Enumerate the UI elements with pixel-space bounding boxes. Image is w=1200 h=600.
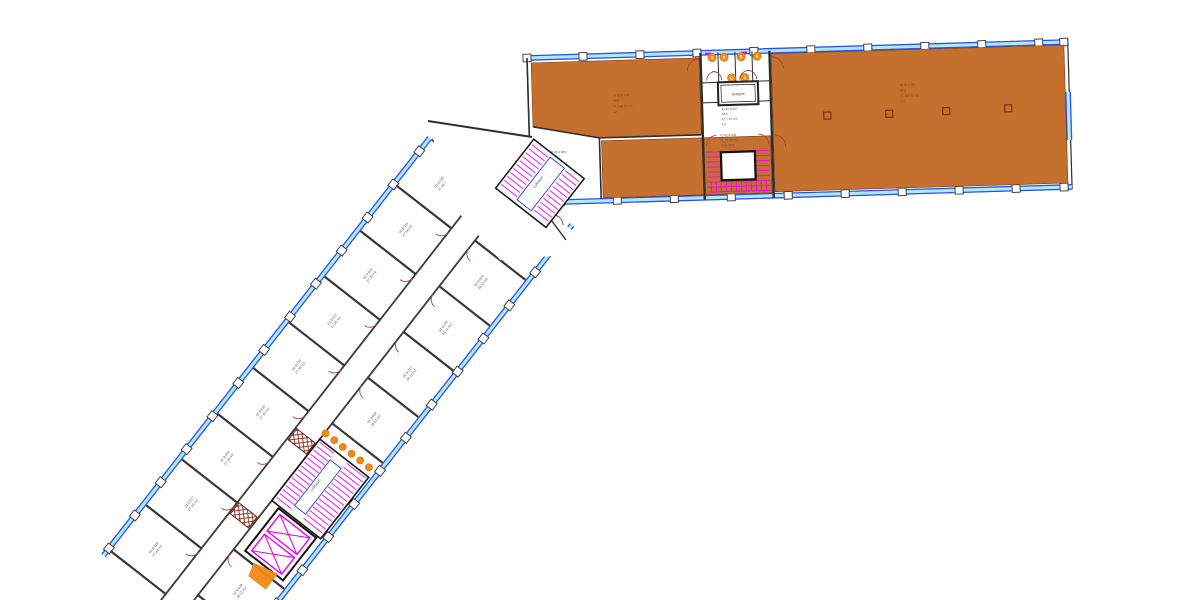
svg-text:FL 138.63 m2: FL 138.63 m2 — [613, 104, 632, 109]
svg-text:LH: LH — [900, 99, 904, 103]
svg-text:FL 7.87 m2: FL 7.87 m2 — [722, 117, 738, 121]
svg-text:NF5: NF5 — [900, 88, 906, 92]
svg-text:ID 02.9.002: ID 02.9.002 — [613, 93, 629, 97]
svg-text:ID 02.9.046: ID 02.9.046 — [720, 133, 736, 137]
svg-text:FL 489.52 m2: FL 489.52 m2 — [900, 93, 919, 98]
svg-text:NF5: NF5 — [613, 99, 619, 103]
svg-text:ID 02.9.047: ID 02.9.047 — [722, 107, 738, 111]
svg-text:ID 02.9.001: ID 02.9.001 — [900, 82, 916, 86]
floor-plan-page: Luftraum 02.9.01027.44 m2 02.9.01127.44 … — [0, 0, 1200, 600]
east-wing: 8 8 8 9 C 3 Schacht ID 02.9.047 NF5 FL 7… — [523, 38, 1073, 207]
shaft-label: Schacht — [732, 92, 745, 96]
svg-text:FL 18.16 m2: FL 18.16 m2 — [720, 138, 738, 143]
svg-text:LH: LH — [722, 122, 726, 126]
svg-text:LH 3.30 m: LH 3.30 m — [721, 143, 736, 147]
room-02-9-001 — [771, 45, 1068, 192]
floor-plan-canvas: Luftraum 02.9.01027.44 m2 02.9.01127.44 … — [0, 0, 1200, 600]
svg-text:LH: LH — [614, 110, 618, 114]
shaft: Schacht — [718, 81, 759, 105]
svg-text:NF5: NF5 — [722, 112, 728, 116]
